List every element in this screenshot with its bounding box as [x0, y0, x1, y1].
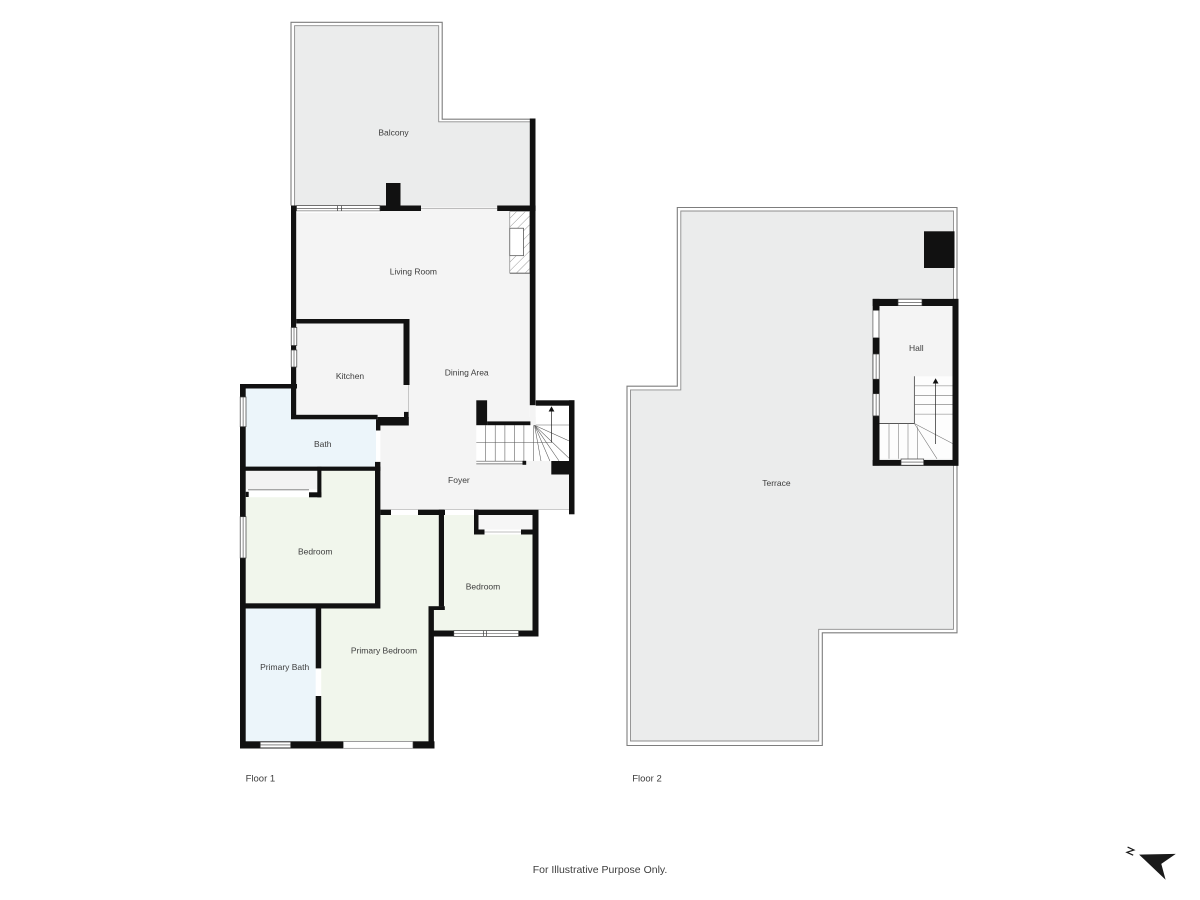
svg-text:Bath: Bath — [314, 439, 332, 449]
svg-text:Balcony: Balcony — [378, 128, 409, 138]
svg-text:Foyer: Foyer — [448, 475, 470, 485]
svg-text:Floor 1: Floor 1 — [246, 774, 276, 785]
svg-text:Living Room: Living Room — [390, 267, 437, 277]
svg-text:Floor 2: Floor 2 — [632, 774, 662, 785]
svg-text:Dining Area: Dining Area — [445, 368, 489, 378]
svg-text:Terrace: Terrace — [762, 478, 791, 488]
svg-text:Kitchen: Kitchen — [336, 371, 365, 381]
svg-text:Primary Bedroom: Primary Bedroom — [351, 646, 417, 656]
svg-text:Primary Bath: Primary Bath — [260, 662, 309, 672]
svg-text:Bedroom: Bedroom — [298, 547, 333, 557]
svg-text:For Illustrative Purpose Only.: For Illustrative Purpose Only. — [533, 864, 668, 876]
svg-text:Hall: Hall — [909, 343, 924, 353]
svg-text:Bedroom: Bedroom — [466, 582, 501, 592]
